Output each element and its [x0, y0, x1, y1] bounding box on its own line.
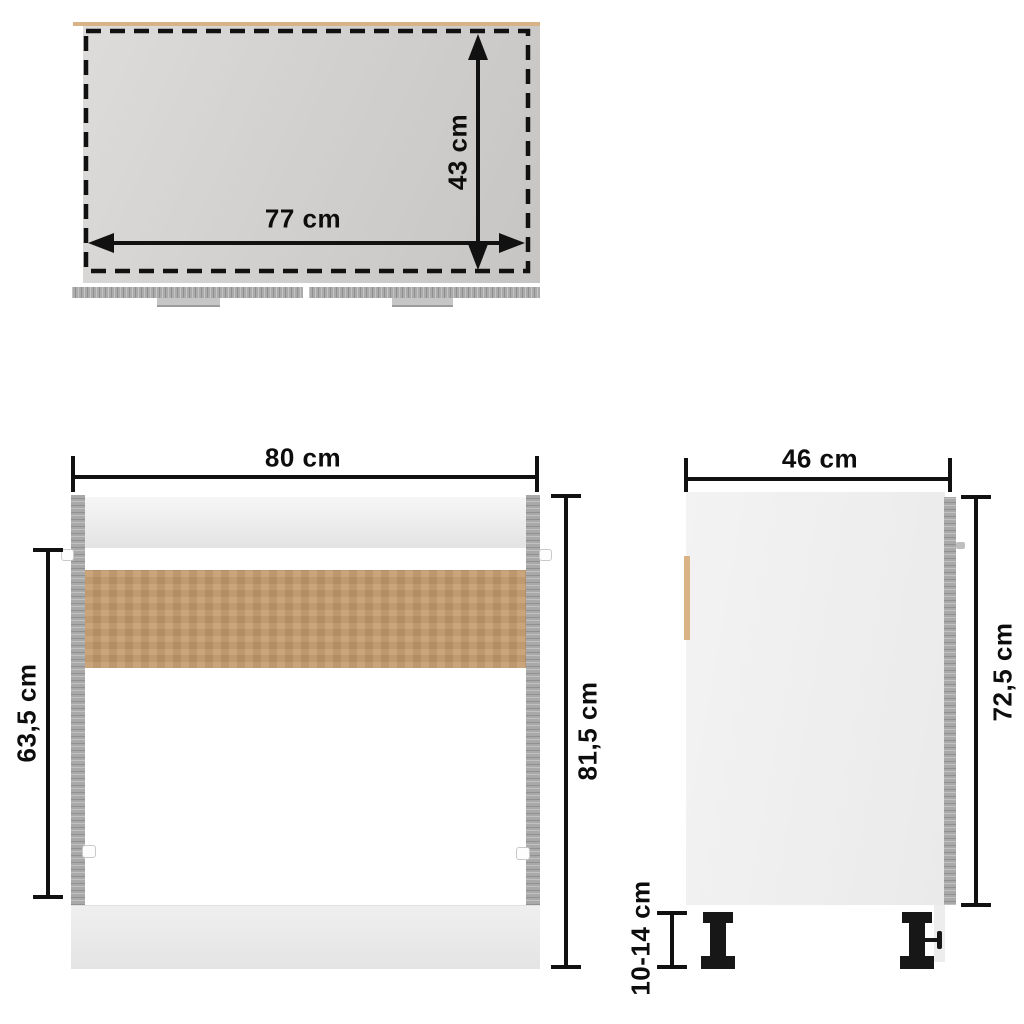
side-view-back-panel: [944, 497, 956, 905]
side-view-depth-label: 46 cm: [782, 444, 858, 475]
side-view-back-leg-foot: [900, 956, 934, 969]
front-view-back-panel: [85, 570, 526, 668]
top-view-front-edge-left: [72, 287, 303, 298]
front-view-peg-right-bottom: [516, 847, 530, 860]
front-view-peg-left-top: [61, 549, 74, 561]
side-view-leg-height-label: 10-14 cm: [626, 880, 657, 995]
side-view-front-leg-cap: [703, 912, 733, 923]
front-view-peg-left-bottom: [82, 845, 96, 858]
side-view-front-leg-stem: [710, 923, 726, 957]
top-view-depth-label: 43 cm: [443, 114, 474, 190]
top-view-handle-tab-right: [392, 298, 453, 307]
front-view-total-height-label: 81,5 cm: [573, 682, 604, 781]
front-view-top-rail: [85, 497, 526, 548]
side-view-front-leg-foot: [701, 956, 735, 969]
side-view-fitting-peg: [956, 542, 965, 549]
front-view-plinth: [71, 905, 540, 969]
front-view-width-label: 80 cm: [265, 443, 341, 474]
side-view-back-leg-stem: [909, 923, 925, 957]
top-view-width-label: 77 cm: [265, 204, 341, 235]
top-view-front-edge-right: [309, 287, 540, 298]
front-view-peg-right-top: [539, 549, 552, 561]
product-dimension-diagram: 77 cm 43 cm 80 cm 63,5 cm 81,5 cm 46 cm …: [0, 0, 1024, 1024]
top-view-handle-tab-left: [157, 298, 220, 307]
front-view-inner-height-label: 63,5 cm: [12, 664, 43, 763]
side-view-body: [686, 492, 945, 905]
side-view-leg-adjuster-screw-head: [937, 931, 942, 949]
side-view-body-height-label: 72,5 cm: [988, 623, 1019, 722]
side-view-door-handle-edge: [684, 556, 690, 640]
side-view-back-leg-cap: [902, 912, 932, 923]
